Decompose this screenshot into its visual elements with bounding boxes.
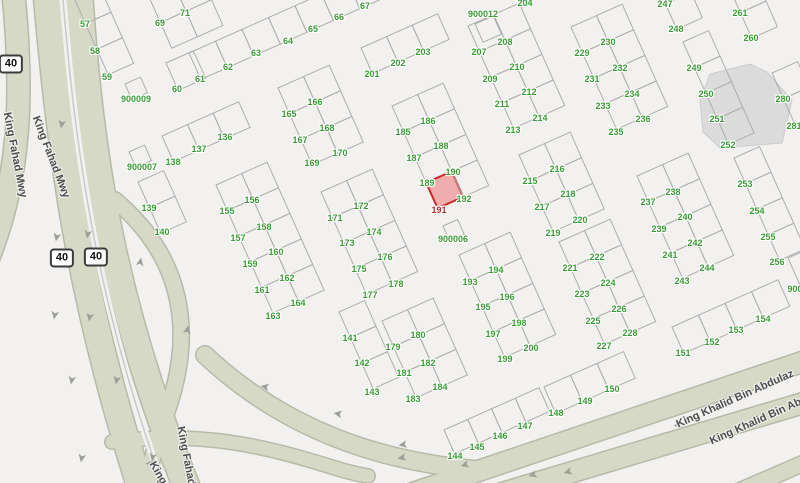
parcel-label-235[interactable]: 235: [608, 127, 623, 137]
parcel-label-213[interactable]: 213: [505, 125, 520, 135]
parcel-label-139[interactable]: 139: [141, 203, 156, 213]
parcel-label-138[interactable]: 138: [165, 157, 180, 167]
parcel-label-255[interactable]: 255: [760, 232, 775, 242]
parcel-label-136[interactable]: 136: [217, 132, 232, 142]
parcel-label-900009[interactable]: 900009: [121, 94, 151, 104]
parcel-label-227[interactable]: 227: [596, 341, 611, 351]
parcel-label-61[interactable]: 61: [195, 74, 205, 84]
parcel-label-216[interactable]: 216: [549, 164, 564, 174]
parcel-label-197[interactable]: 197: [485, 329, 500, 339]
parcel-label-232[interactable]: 232: [612, 63, 627, 73]
map-canvas[interactable]: ➤➤➤➤➤➤➤➤➤➤➤➤➤➤➤➤➤➤➤➤ 5758596069716162636…: [0, 0, 800, 483]
parcel-label-207[interactable]: 207: [471, 47, 486, 57]
highway-shield-40: 40: [50, 249, 74, 268]
parcel-label-166[interactable]: 166: [307, 97, 322, 107]
parcel-label-223[interactable]: 223: [574, 289, 589, 299]
road-name-label: King Fahad Mwy: [30, 114, 72, 199]
parcel-label-154[interactable]: 154: [755, 314, 770, 324]
parcel-label-244[interactable]: 244: [699, 263, 714, 273]
parcel-label-159[interactable]: 159: [242, 259, 257, 269]
road-name-label: King Fahad Mwy: [1, 111, 29, 198]
parcel-label-203[interactable]: 203: [415, 47, 430, 57]
parcel-label-140[interactable]: 140: [154, 227, 169, 237]
parcel-label-236[interactable]: 236: [635, 114, 650, 124]
parcel-label-238[interactable]: 238: [665, 187, 680, 197]
parcel-label-240[interactable]: 240: [677, 212, 692, 222]
parcel-label-189[interactable]: 189: [419, 178, 434, 188]
parcel-label-208[interactable]: 208: [497, 37, 512, 47]
parcel-label-219[interactable]: 219: [545, 228, 560, 238]
parcel-label-149[interactable]: 149: [577, 396, 592, 406]
parcel-label-225[interactable]: 225: [585, 316, 600, 326]
parcel-label-260[interactable]: 260: [743, 33, 758, 43]
parcel-label-137[interactable]: 137: [191, 144, 206, 154]
parcel-label-182[interactable]: 182: [420, 358, 435, 368]
parcel-label-231[interactable]: 231: [584, 74, 599, 84]
parcel-label-195[interactable]: 195: [475, 302, 490, 312]
highway-shield-40: 40: [0, 55, 23, 74]
parcel-label-64[interactable]: 64: [283, 36, 293, 46]
parcel-label-237[interactable]: 237: [640, 197, 655, 207]
parcel-label-144[interactable]: 144: [447, 451, 462, 461]
parcel-label-188[interactable]: 188: [433, 141, 448, 151]
parcel-label-150[interactable]: 150: [604, 384, 619, 394]
parcel-label-248[interactable]: 248: [668, 24, 683, 34]
parcel-label-183[interactable]: 183: [405, 394, 420, 404]
highlighted-parcel-label[interactable]: 191: [431, 205, 446, 215]
parcel-label-158[interactable]: 158: [256, 222, 271, 232]
parcel-label-60[interactable]: 60: [172, 84, 182, 94]
parcel-label-142[interactable]: 142: [354, 358, 369, 368]
road-name-label: King Khalid Bin Abdulaz: [674, 368, 795, 431]
parcel-label-59[interactable]: 59: [102, 72, 112, 82]
parcel-label-201[interactable]: 201: [364, 69, 379, 79]
parcel-label-221[interactable]: 221: [562, 263, 577, 273]
parcel-label-157[interactable]: 157: [230, 233, 245, 243]
parcel-label-160[interactable]: 160: [268, 247, 283, 257]
parcel-label-229[interactable]: 229: [574, 48, 589, 58]
parcel-label-171[interactable]: 171: [327, 213, 342, 223]
parcel-label-170[interactable]: 170: [332, 148, 347, 158]
parcel-label-181[interactable]: 181: [396, 368, 411, 378]
parcel-label-228[interactable]: 228: [622, 328, 637, 338]
parcel-label-71[interactable]: 71: [180, 8, 190, 18]
parcel-label-167[interactable]: 167: [292, 135, 307, 145]
parcel-label-256[interactable]: 256: [769, 257, 784, 267]
parcel-label-199[interactable]: 199: [497, 354, 512, 364]
parcel-label-200[interactable]: 200: [523, 343, 538, 353]
parcel-label-224[interactable]: 224: [600, 278, 615, 288]
parcel-label-148[interactable]: 148: [548, 408, 563, 418]
parcel-label-164[interactable]: 164: [290, 298, 305, 308]
road-name-label: King: [147, 459, 170, 483]
parcel-label-179[interactable]: 179: [385, 342, 400, 352]
parcel-label-247[interactable]: 247: [657, 0, 672, 9]
parcel-label-239[interactable]: 239: [651, 224, 666, 234]
parcel-label-220[interactable]: 220: [572, 215, 587, 225]
parcel-label-252[interactable]: 252: [720, 140, 735, 150]
parcel-label-196[interactable]: 196: [499, 292, 514, 302]
parcel-label-242[interactable]: 242: [687, 238, 702, 248]
parcel-label-63[interactable]: 63: [251, 48, 261, 58]
parcel-label-178[interactable]: 178: [388, 279, 403, 289]
parcel-label-58[interactable]: 58: [90, 46, 100, 56]
parcel-label-281[interactable]: 281: [786, 121, 800, 131]
parcel-label-143[interactable]: 143: [364, 387, 379, 397]
parcel-label-147[interactable]: 147: [517, 421, 532, 431]
parcel-label-173[interactable]: 173: [339, 238, 354, 248]
road-name-label: King Fahad: [174, 425, 197, 483]
parcel-label-193[interactable]: 193: [462, 277, 477, 287]
parcel-label-210[interactable]: 210: [509, 62, 524, 72]
parcel-label-180[interactable]: 180: [410, 330, 425, 340]
highway-shield-40: 40: [84, 248, 108, 267]
parcel-label-163[interactable]: 163: [265, 311, 280, 321]
parcel-label-162[interactable]: 162: [279, 273, 294, 283]
parcel-label-261[interactable]: 261: [732, 8, 747, 18]
parcel-label-layer: 5758596069716162636465666713613713813914…: [0, 0, 800, 483]
parcel-label-211[interactable]: 211: [495, 99, 510, 109]
parcel-label-217[interactable]: 217: [534, 202, 549, 212]
parcel-label-900006[interactable]: 900006: [438, 234, 468, 244]
parcel-label-57[interactable]: 57: [80, 19, 90, 29]
parcel-label-155[interactable]: 155: [219, 206, 234, 216]
parcel-label-226[interactable]: 226: [611, 304, 626, 314]
parcel-label-187[interactable]: 187: [406, 153, 421, 163]
parcel-label-250[interactable]: 250: [698, 89, 713, 99]
parcel-label-254[interactable]: 254: [749, 206, 764, 216]
parcel-label-174[interactable]: 174: [366, 227, 381, 237]
parcel-label-280[interactable]: 280: [775, 94, 790, 104]
parcel-label-176[interactable]: 176: [377, 252, 392, 262]
parcel-label-900007[interactable]: 900007: [127, 162, 157, 172]
parcel-label-145[interactable]: 145: [469, 442, 484, 452]
parcel-label-243[interactable]: 243: [674, 276, 689, 286]
parcel-label-69[interactable]: 69: [155, 18, 165, 28]
parcel-label-230[interactable]: 230: [600, 37, 615, 47]
parcel-label-65[interactable]: 65: [308, 24, 318, 34]
parcel-label-251[interactable]: 251: [709, 114, 724, 124]
parcel-label-141[interactable]: 141: [342, 333, 357, 343]
parcel-label-241[interactable]: 241: [662, 250, 677, 260]
parcel-label-204[interactable]: 204: [517, 0, 532, 8]
parcel-label-209[interactable]: 209: [482, 74, 497, 84]
parcel-label-175[interactable]: 175: [351, 264, 366, 274]
parcel-label-177[interactable]: 177: [362, 290, 377, 300]
parcel-label-156[interactable]: 156: [244, 195, 259, 205]
parcel-label-192[interactable]: 192: [456, 194, 471, 204]
parcel-label-151[interactable]: 151: [675, 348, 690, 358]
parcel-label-66[interactable]: 66: [334, 12, 344, 22]
parcel-label-146[interactable]: 146: [492, 431, 507, 441]
parcel-label-152[interactable]: 152: [704, 337, 719, 347]
parcel-label-90000[interactable]: 90000: [787, 284, 800, 294]
parcel-label-253[interactable]: 253: [737, 179, 752, 189]
parcel-label-218[interactable]: 218: [560, 189, 575, 199]
parcel-label-222[interactable]: 222: [589, 252, 604, 262]
parcel-label-186[interactable]: 186: [420, 116, 435, 126]
parcel-label-169[interactable]: 169: [304, 158, 319, 168]
parcel-label-202[interactable]: 202: [390, 58, 405, 68]
parcel-label-184[interactable]: 184: [432, 382, 447, 392]
parcel-label-234[interactable]: 234: [624, 89, 639, 99]
parcel-label-165[interactable]: 165: [281, 109, 296, 119]
parcel-label-233[interactable]: 233: [595, 101, 610, 111]
parcel-label-900012[interactable]: 900012: [468, 9, 498, 19]
parcel-label-67[interactable]: 67: [360, 1, 370, 11]
parcel-label-194[interactable]: 194: [488, 265, 503, 275]
parcel-label-153[interactable]: 153: [728, 325, 743, 335]
parcel-label-198[interactable]: 198: [511, 318, 526, 328]
parcel-label-212[interactable]: 212: [521, 87, 536, 97]
parcel-label-161[interactable]: 161: [254, 285, 269, 295]
parcel-label-172[interactable]: 172: [353, 201, 368, 211]
parcel-label-215[interactable]: 215: [522, 176, 537, 186]
parcel-label-185[interactable]: 185: [395, 127, 410, 137]
parcel-label-249[interactable]: 249: [686, 63, 701, 73]
parcel-label-214[interactable]: 214: [532, 113, 547, 123]
parcel-label-168[interactable]: 168: [319, 123, 334, 133]
parcel-label-62[interactable]: 62: [223, 62, 233, 72]
parcel-label-190[interactable]: 190: [445, 167, 460, 177]
